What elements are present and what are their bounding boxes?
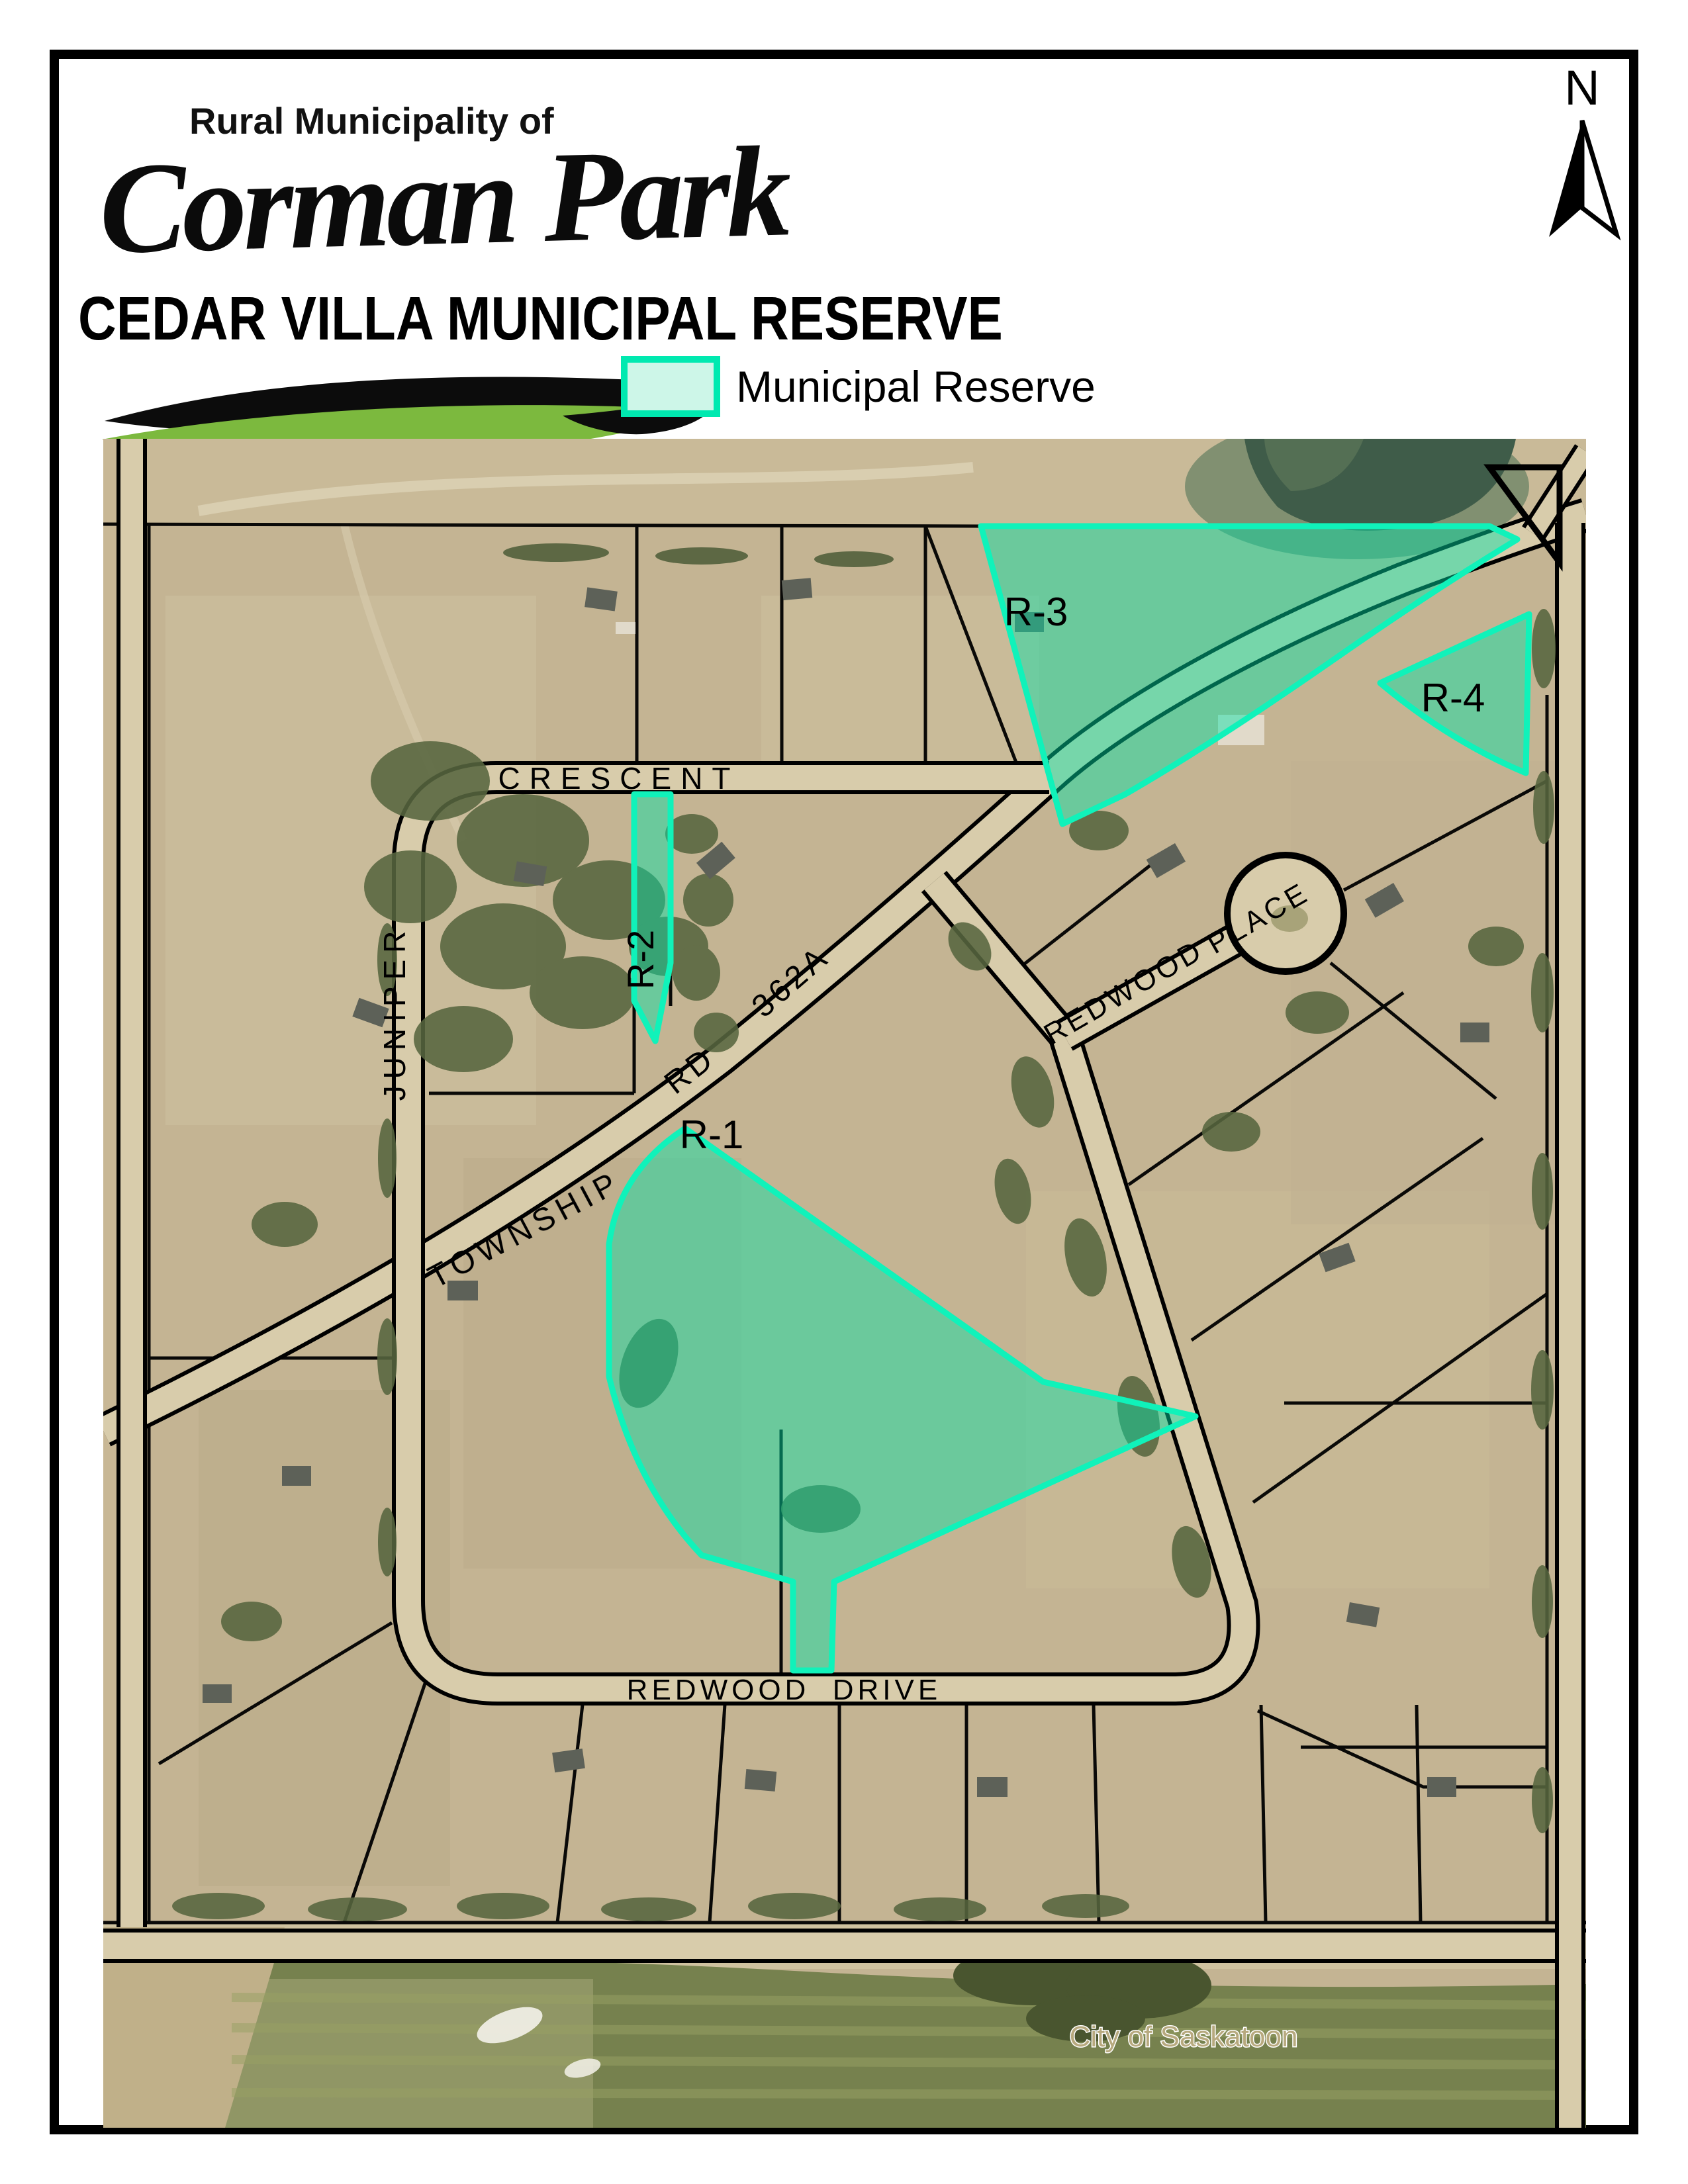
street-label-juniper: JUNIPER bbox=[377, 925, 412, 1101]
map-canvas: CRESCENT JUNIPER TOWNSHIP RD 362A REDWOO… bbox=[103, 439, 1586, 2128]
document-page: { "page": { "background": "#ffffff", "fr… bbox=[0, 0, 1688, 2184]
north-arrow-right-blade bbox=[1582, 120, 1617, 234]
municipal-reserve-swatch-icon bbox=[621, 356, 720, 417]
reserve-label-r1: R-1 bbox=[680, 1113, 744, 1157]
reserve-label-r3: R-3 bbox=[1004, 590, 1068, 634]
city-of-saskatoon-label: City of Saskatoon bbox=[1070, 2021, 1298, 2053]
north-arrow: N bbox=[1534, 53, 1634, 251]
logo-name: Corman Park bbox=[97, 116, 789, 283]
page-title: CEDAR VILLA MUNICIPAL RESERVE bbox=[78, 283, 1003, 354]
reserve-label-r4: R-4 bbox=[1421, 676, 1485, 720]
north-arrow-left-blade bbox=[1549, 120, 1582, 237]
aerial-map: CRESCENT JUNIPER TOWNSHIP RD 362A REDWOO… bbox=[103, 439, 1586, 2128]
legend-label: Municipal Reserve bbox=[736, 361, 1096, 412]
corman-park-logo: Rural Municipality of Corman Park bbox=[99, 73, 827, 404]
street-label-redwood-drive-1: REDWOOD bbox=[627, 1674, 810, 1706]
reserve-label-r2: R-2 bbox=[620, 930, 661, 989]
street-label-redwood-drive-2: DRIVE bbox=[833, 1674, 941, 1706]
north-label: N bbox=[1564, 60, 1599, 115]
street-label-crescent: CRESCENT bbox=[498, 761, 739, 796]
reserve-r2-polygon bbox=[634, 794, 671, 1041]
